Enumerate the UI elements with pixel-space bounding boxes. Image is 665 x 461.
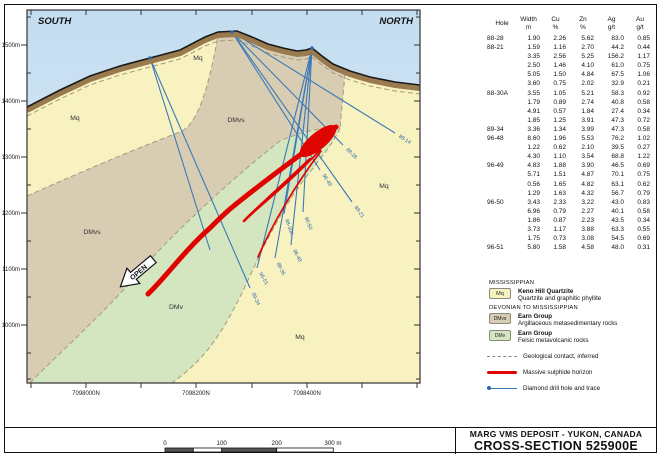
figure-border: [4, 4, 657, 453]
figure-cross-section: 88-1488-2896-4988-2196-5088-30A96-4889-3…: [0, 0, 665, 461]
